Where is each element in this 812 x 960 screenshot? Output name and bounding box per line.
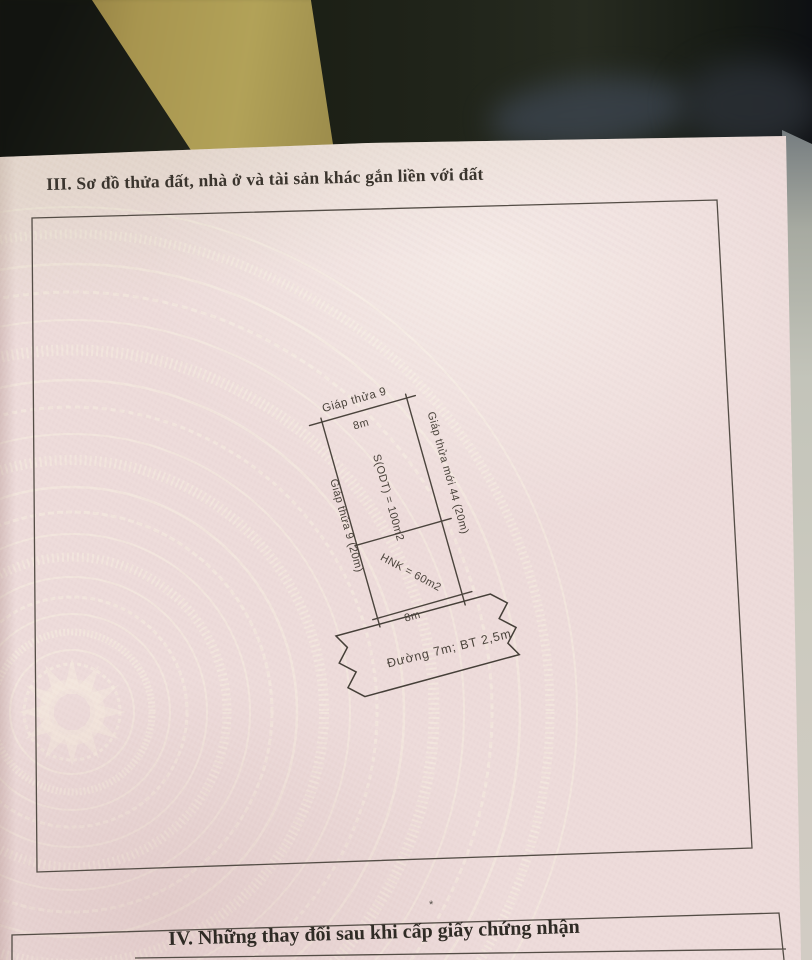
plot-bottom-edge [373, 592, 472, 620]
road-outline [332, 590, 523, 701]
crop-area-label: HNK = 60m2 [378, 552, 443, 594]
land-plot: Giáp thửa 9 8m S(ODT) = 100m2 Giáp thửa … [305, 374, 490, 635]
residential-area-label: S(ODT) = 100m2 [370, 453, 406, 543]
footnote-mark: * [429, 899, 433, 911]
adjacent-right-label: Giáp thửa mới 44 (20m) [425, 410, 471, 535]
adjacent-left-label: Giáp thửa 9 (20m) [327, 478, 365, 574]
adjacent-top-label: Giáp thửa 9 [321, 386, 388, 416]
diagram-frame [32, 200, 752, 872]
certificate-photo: Giáp thửa 9 8m S(ODT) = 100m2 Giáp thửa … [0, 0, 812, 960]
road-band: Đường 7m; BT 2,5m [332, 590, 523, 701]
road-label: Đường 7m; BT 2,5m [385, 626, 513, 670]
top-width-label: 8m [352, 416, 371, 432]
plot-diagram: Giáp thửa 9 8m S(ODT) = 100m2 Giáp thửa … [0, 0, 812, 960]
